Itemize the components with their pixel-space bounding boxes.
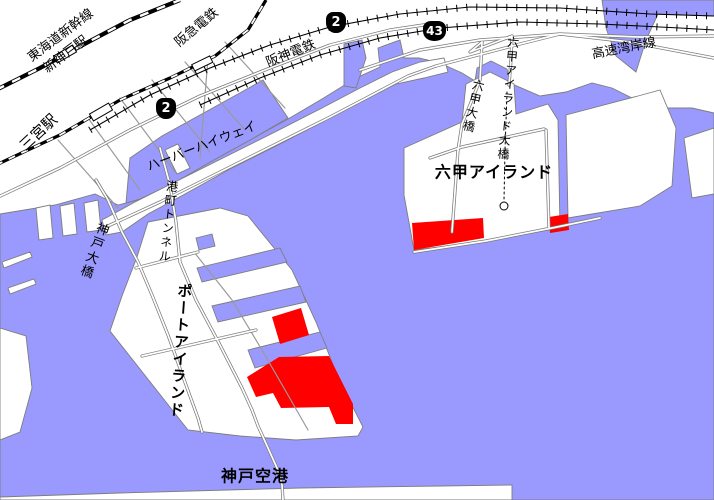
west-pier-2: [60, 203, 77, 236]
rokko-line-terminal: [500, 202, 508, 210]
shinkansen-line: [0, 0, 180, 90]
route-badge-2-east: 2: [326, 12, 346, 33]
route-badge-43: 43: [423, 21, 446, 41]
route-badge-2-west: 2: [156, 98, 176, 119]
map-canvas[interactable]: [0, 0, 714, 500]
west-pier-3: [84, 200, 101, 232]
shin-kobe-station-marker: [53, 45, 76, 63]
west-pier-1: [36, 205, 53, 240]
kobe-port-map[interactable]: 東海道新幹線 新神戸駅 阪急電鉄 阪神電鉄 三宮駅 ハーバーハイウェイ 高速湾岸…: [0, 0, 714, 500]
